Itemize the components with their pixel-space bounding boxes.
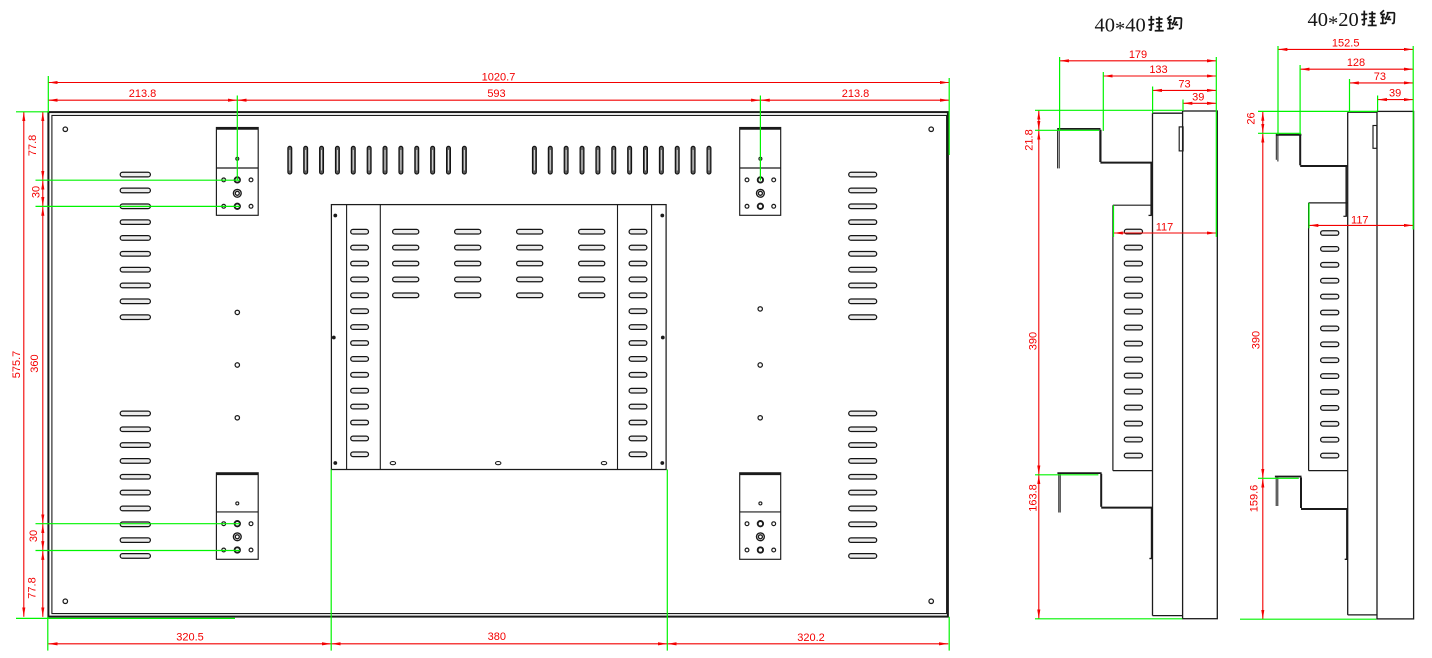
svg-text:1020.7: 1020.7 (482, 71, 516, 83)
svg-text:30: 30 (31, 186, 43, 198)
svg-text:360: 360 (29, 354, 41, 372)
svg-text:213.8: 213.8 (129, 88, 157, 100)
svg-text:159.6: 159.6 (1249, 485, 1261, 513)
svg-text:390: 390 (1251, 331, 1263, 349)
svg-text:40*20: 40*20 (1308, 9, 1359, 35)
svg-text:152.5: 152.5 (1332, 37, 1360, 49)
svg-text:213.8: 213.8 (842, 88, 870, 100)
svg-text:593: 593 (487, 88, 505, 100)
svg-text:40*40: 40*40 (1095, 15, 1146, 41)
svg-text:380: 380 (488, 631, 506, 643)
svg-text:163.8: 163.8 (1027, 484, 1039, 512)
svg-text:128: 128 (1347, 57, 1365, 69)
svg-text:39: 39 (1389, 88, 1401, 100)
svg-text:179: 179 (1129, 49, 1147, 61)
svg-text:21.8: 21.8 (1024, 129, 1036, 150)
svg-text:320.2: 320.2 (797, 632, 825, 644)
svg-text:73: 73 (1374, 71, 1386, 83)
svg-text:133: 133 (1149, 64, 1167, 76)
svg-text:26: 26 (1246, 112, 1258, 124)
svg-text:117: 117 (1156, 222, 1174, 234)
svg-text:39: 39 (1192, 91, 1204, 103)
svg-text:320.5: 320.5 (176, 632, 204, 644)
svg-text:575.7: 575.7 (11, 351, 23, 379)
svg-text:77.8: 77.8 (27, 135, 39, 156)
svg-text:390: 390 (1027, 332, 1039, 350)
svg-text:30: 30 (28, 530, 40, 542)
svg-text:117: 117 (1351, 215, 1369, 227)
svg-text:77.8: 77.8 (27, 577, 39, 598)
svg-text:73: 73 (1178, 78, 1190, 90)
